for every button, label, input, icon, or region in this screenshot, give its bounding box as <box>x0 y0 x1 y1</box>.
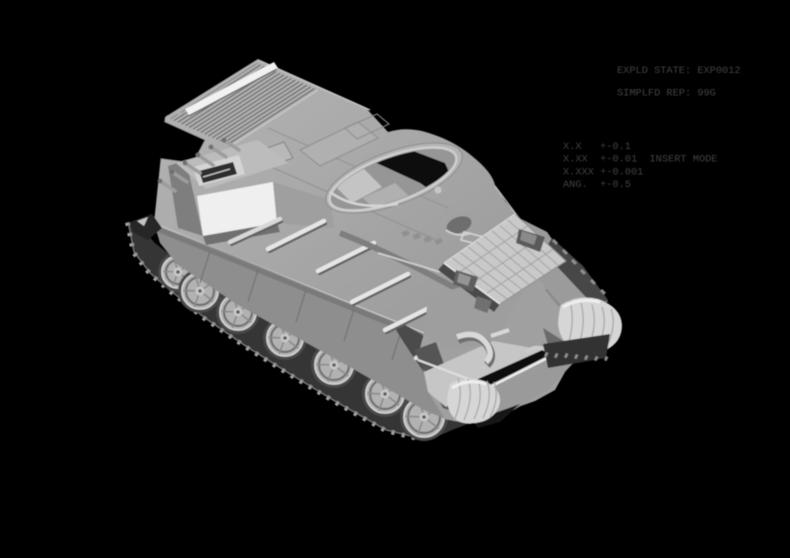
svg-text:ANG. +-0.5: ANG. +-0.5 <box>563 179 631 191</box>
svg-text:X.XX +-0.01 INSERT MODE: X.XX +-0.01 INSERT MODE <box>563 154 717 166</box>
svg-text:EXPLD STATE: EXP0012: EXPLD STATE: EXP0012 <box>617 65 741 77</box>
svg-text:X.XXX +-0.001: X.XXX +-0.001 <box>563 166 643 178</box>
svg-text:SIMPLFD REP: 99G: SIMPLFD REP: 99G <box>617 88 716 100</box>
svg-text:X.X +-0.1: X.X +-0.1 <box>563 141 631 153</box>
